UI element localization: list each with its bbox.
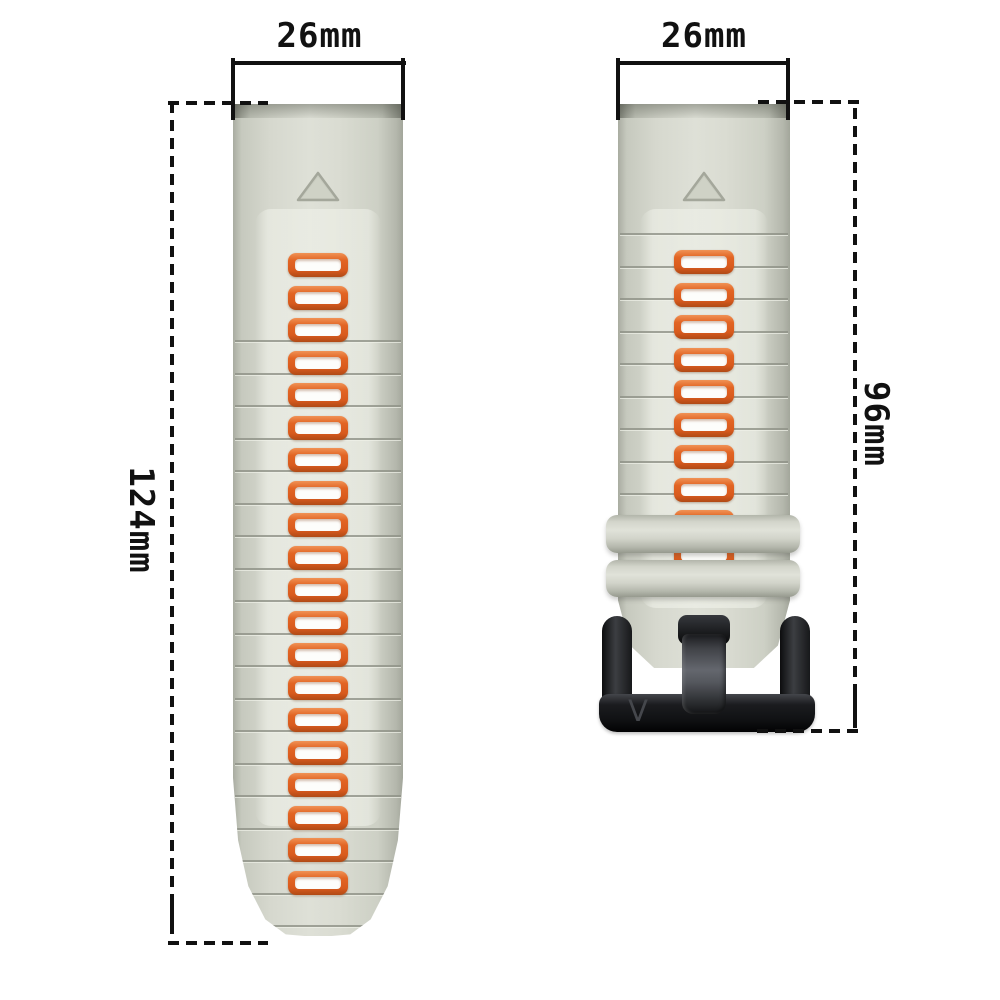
right-length-extension-bottom: [757, 729, 860, 733]
right-width-tick-end: [786, 58, 790, 120]
strap-pin-slot: [674, 283, 734, 307]
strap-pin-slot: [674, 380, 734, 404]
left-width-tick-end: [401, 58, 405, 120]
strap-pin-slot: [288, 513, 348, 537]
left-length-extension-top: [168, 101, 268, 105]
right-length-line-end: [853, 694, 857, 728]
left-width-tick-start: [231, 58, 235, 120]
buckle-frame-left-arm: [602, 616, 632, 706]
strap-pin-slot: [288, 318, 348, 342]
strap-pin-slot: [288, 578, 348, 602]
strap-pin-slot: [288, 708, 348, 732]
left-length-line-end: [170, 898, 174, 934]
right-strap-width-label: 26mm: [618, 16, 790, 56]
strap-pin-slot: [288, 806, 348, 830]
strap-groove-line: [620, 233, 788, 236]
strap-pin-slot: [288, 383, 348, 407]
strap-keeper-loop: [606, 560, 800, 597]
strap-pin-slot: [288, 773, 348, 797]
left-strap-width-label: 26mm: [233, 16, 406, 56]
strap-pin-slot: [288, 741, 348, 765]
left-watch-strap: [233, 104, 403, 936]
right-length-extension-top: [758, 100, 862, 104]
strap-pin-slot: [674, 348, 734, 372]
left-strap-top-edge: [233, 104, 403, 118]
left-strap-length-label: 124mm: [121, 440, 161, 600]
strap-keeper-loop: [606, 515, 800, 553]
strap-pin-slot: [288, 416, 348, 440]
strap-pin-slot: [288, 351, 348, 375]
strap-groove-line: [235, 958, 401, 961]
strap-pin-slot: [288, 253, 348, 277]
product-dimension-image: 26mm 26mm 124mm 96mm: [0, 0, 1000, 1000]
right-strap-length-label: 96mm: [856, 344, 896, 504]
strap-pin-slot: [288, 643, 348, 667]
strap-pin-slot: [288, 481, 348, 505]
right-strap-top-edge: [618, 104, 790, 118]
left-width-dimension-line: [233, 61, 406, 65]
left-length-extension-bottom: [168, 941, 268, 945]
strap-pin-slot: [674, 250, 734, 274]
triangle-marker-icon: [295, 168, 341, 204]
strap-pin-slot: [288, 286, 348, 310]
triangle-marker-icon: [681, 168, 727, 204]
buckle-tongue-pin: [682, 634, 726, 714]
strap-pin-slot: [288, 676, 348, 700]
strap-pin-slot: [288, 871, 348, 895]
strap-pin-slot: [288, 838, 348, 862]
strap-pin-slot: [288, 448, 348, 472]
strap-pin-slot: [288, 546, 348, 570]
left-length-dimension-line: [170, 102, 174, 902]
strap-pin-slot: [674, 315, 734, 339]
buckle-frame-right-arm: [780, 616, 810, 706]
strap-groove-line: [235, 925, 401, 928]
strap-pin-slot: [674, 413, 734, 437]
strap-pin-slot: [674, 478, 734, 502]
right-width-dimension-line: [618, 61, 790, 65]
right-width-tick-start: [616, 58, 620, 120]
strap-groove-line: [235, 990, 401, 993]
buckle-logo: V: [616, 694, 660, 728]
strap-pin-slot: [674, 445, 734, 469]
strap-pin-slot: [288, 611, 348, 635]
